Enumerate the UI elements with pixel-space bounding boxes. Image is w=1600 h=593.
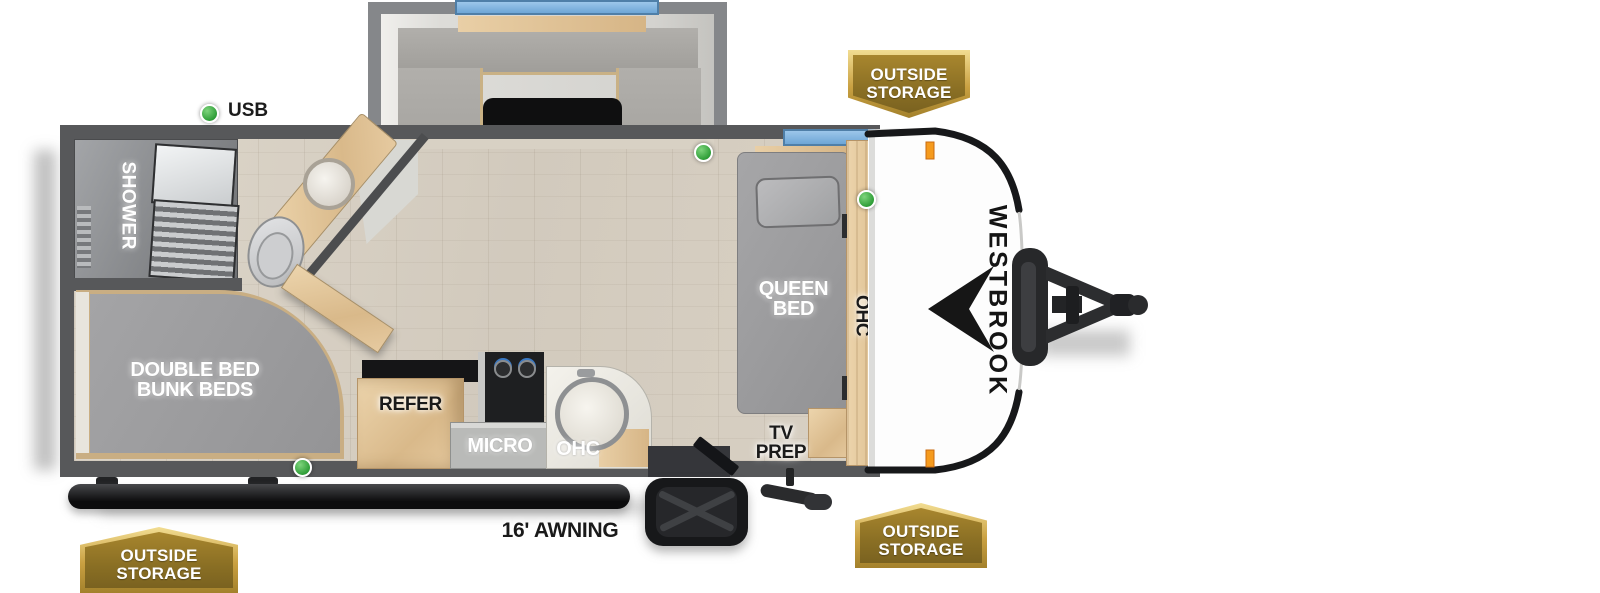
badge-face: OUTSIDE STORAGE <box>853 55 965 113</box>
stabilizer-foot <box>804 494 832 510</box>
led-dinette <box>694 143 713 162</box>
awning-label: 16' AWNING <box>495 520 625 541</box>
badge-face: OUTSIDE STORAGE <box>85 532 233 588</box>
brand-name: WESTBROOK <box>983 205 1012 397</box>
awning-tube <box>68 484 630 509</box>
led-usb <box>200 104 219 123</box>
stabilizer-pin <box>786 468 794 486</box>
hitch <box>1010 240 1150 370</box>
led-bedroom <box>857 190 876 209</box>
usb-label: USB <box>228 100 268 122</box>
floorplan-canvas: DINETTE SHOWER DOUBLE BED BUNK BEDS REFE <box>0 0 1600 593</box>
led-bunk <box>293 458 312 477</box>
badge-face: OUTSIDE STORAGE <box>860 508 982 563</box>
